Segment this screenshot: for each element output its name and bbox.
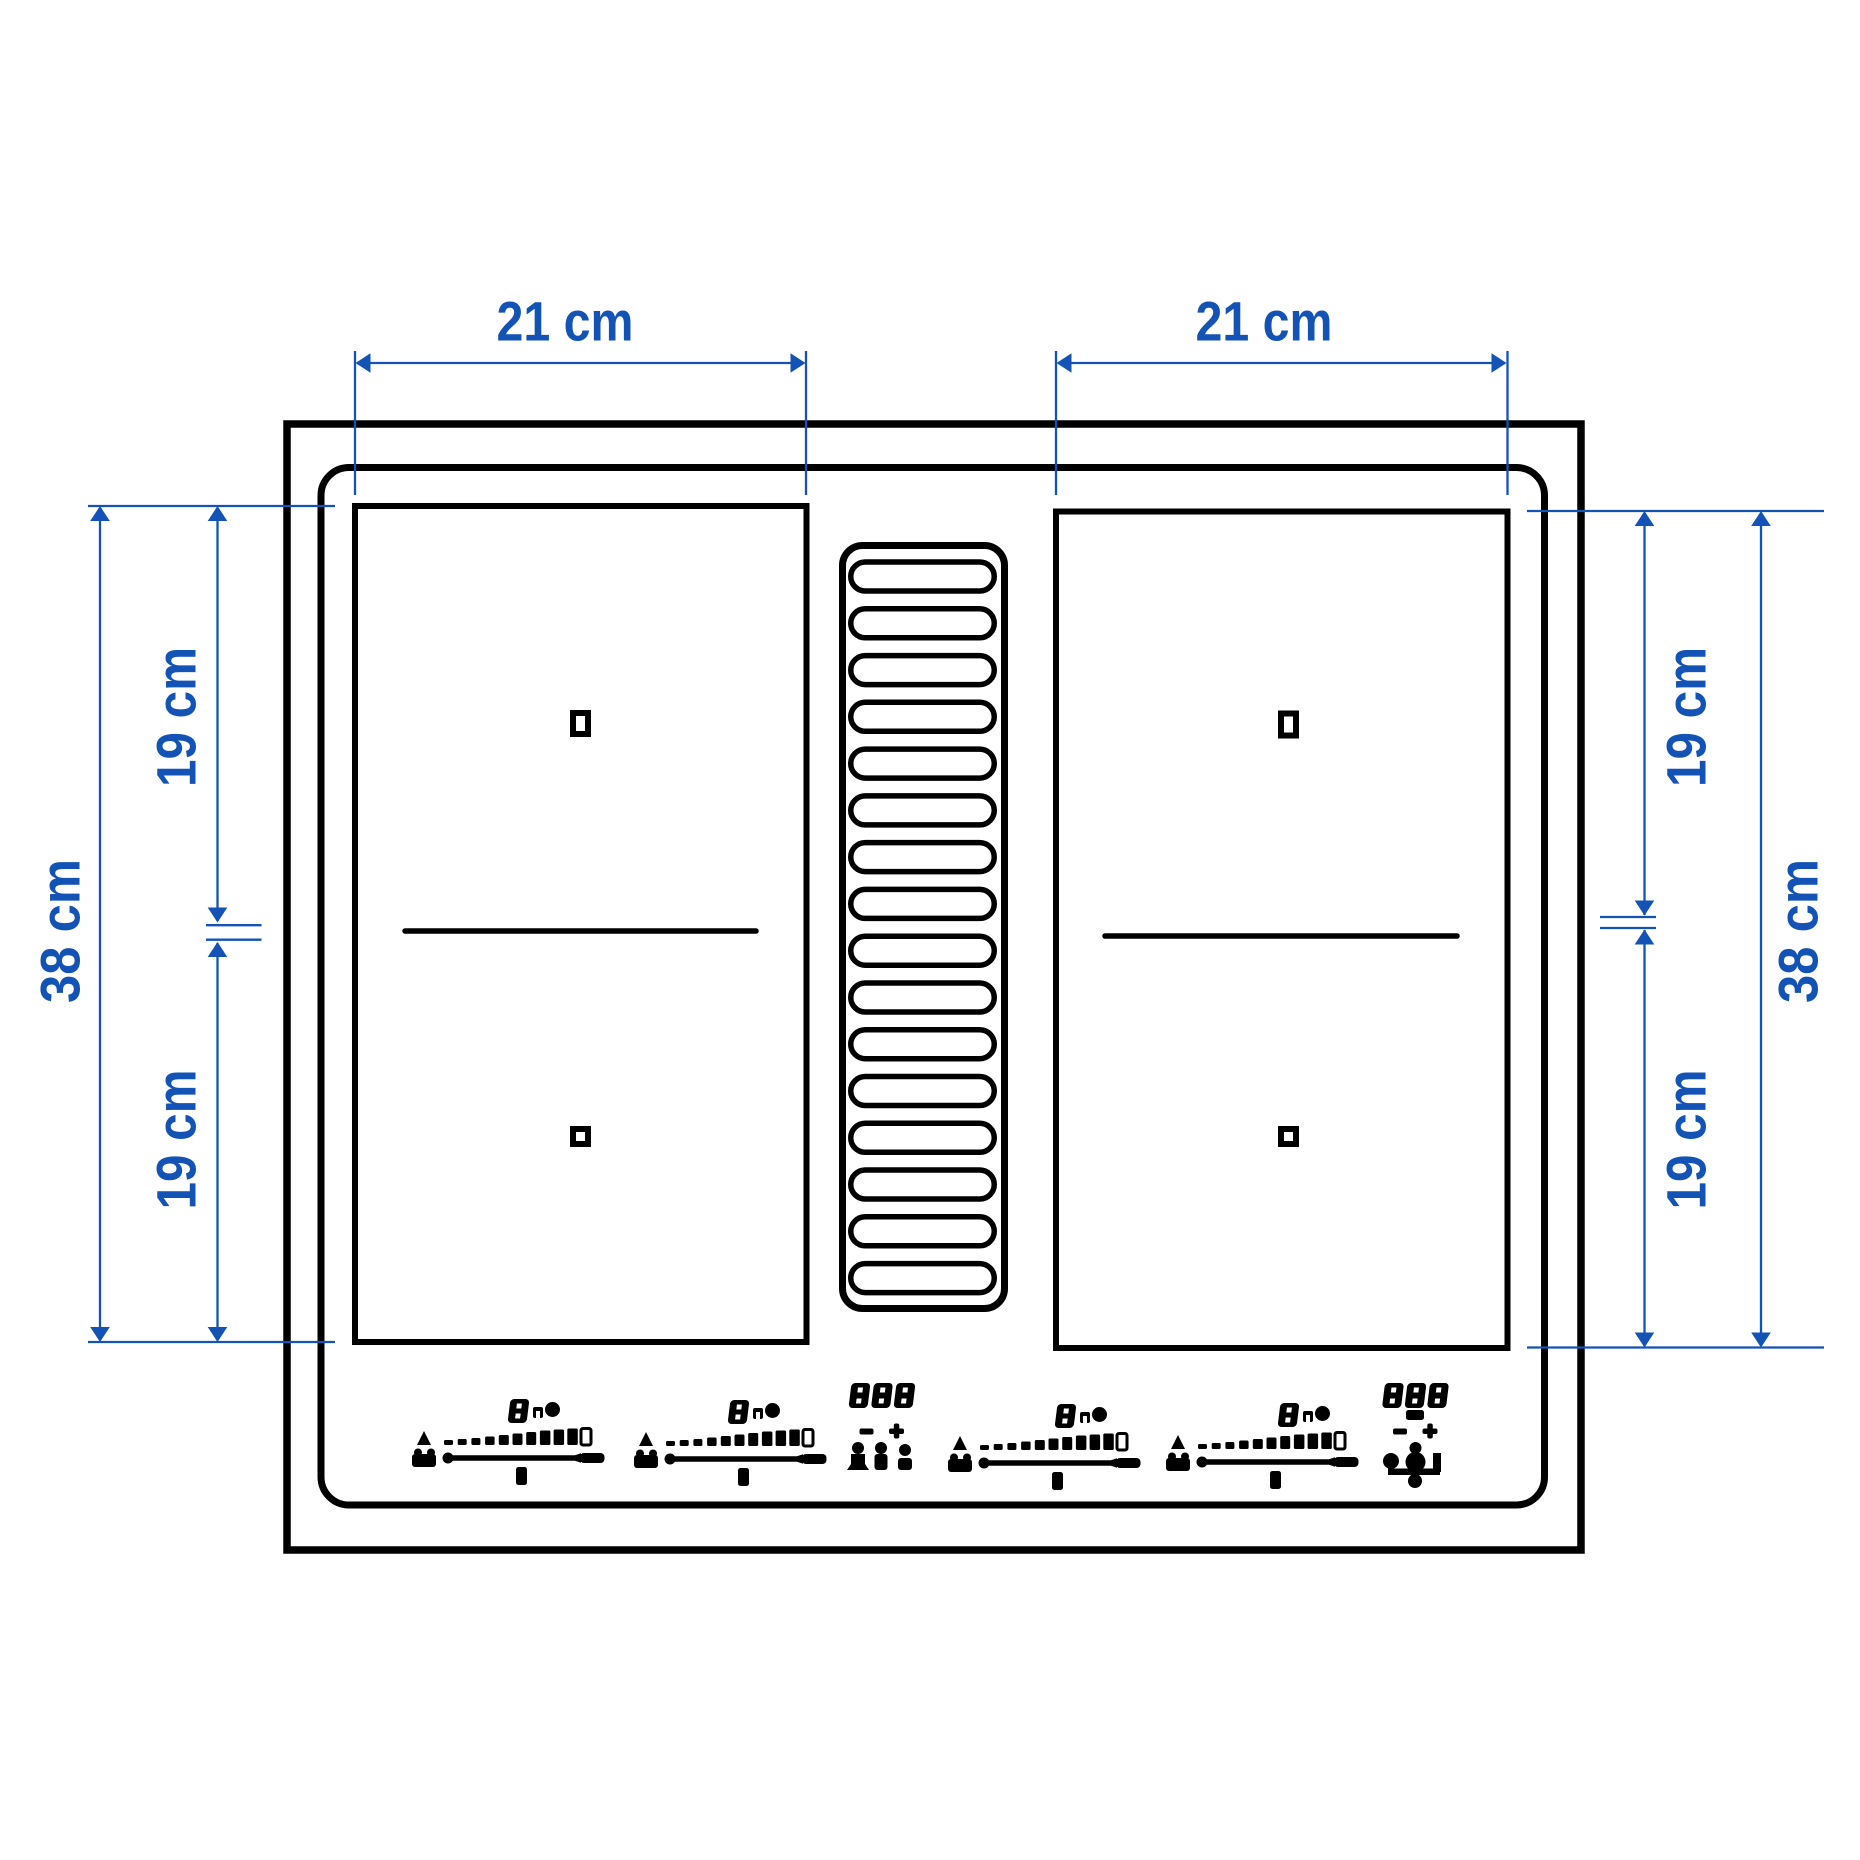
svg-text:19 cm: 19 cm — [1655, 1070, 1718, 1210]
svg-text:19 cm: 19 cm — [145, 1070, 208, 1210]
svg-text:38 cm: 38 cm — [29, 859, 92, 1003]
svg-text:21 cm: 21 cm — [1196, 290, 1333, 353]
svg-text:19 cm: 19 cm — [145, 647, 208, 787]
svg-text:21 cm: 21 cm — [497, 290, 634, 353]
svg-text:38 cm: 38 cm — [1767, 859, 1830, 1003]
svg-text:19 cm: 19 cm — [1655, 647, 1718, 787]
